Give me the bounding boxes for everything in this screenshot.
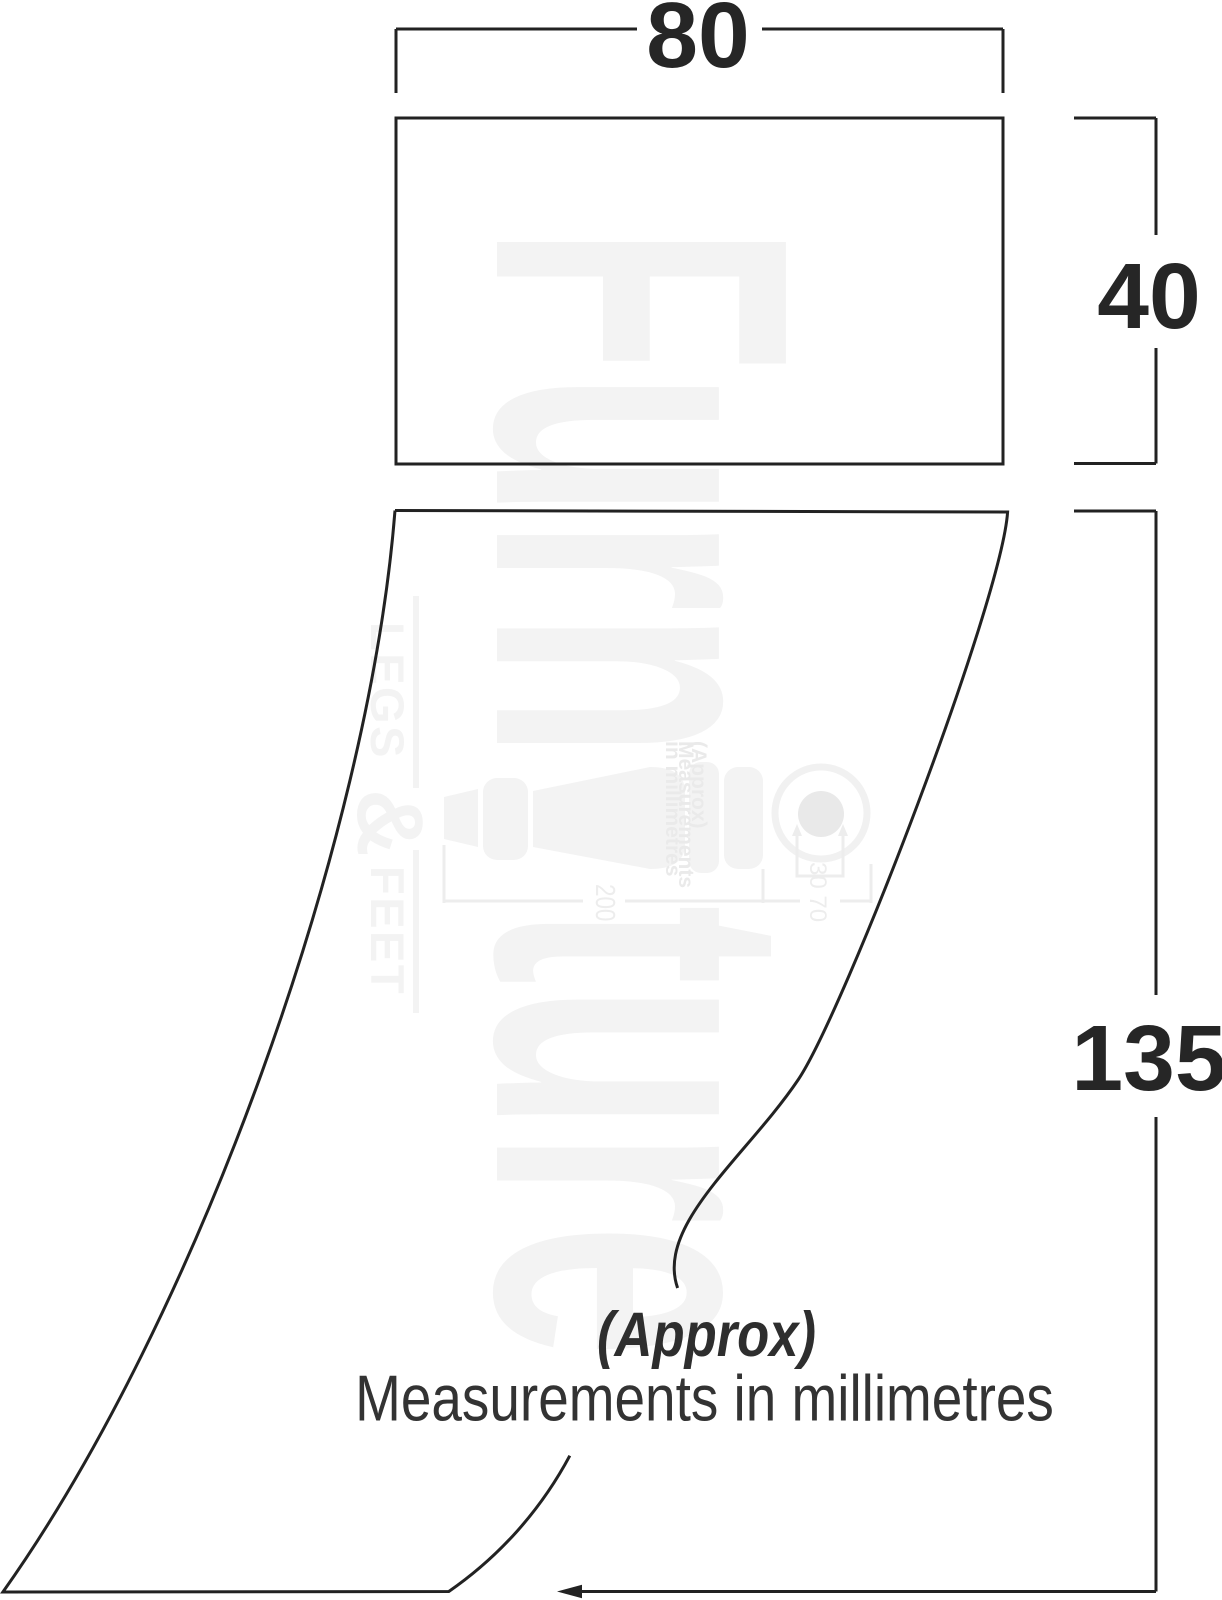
svg-text:80: 80 xyxy=(646,0,749,87)
svg-text:200: 200 xyxy=(589,884,620,921)
svg-text:&: & xyxy=(338,789,443,857)
svg-text:(Approx): (Approx) xyxy=(597,1300,816,1371)
svg-text:135: 135 xyxy=(1071,1006,1222,1110)
svg-text:ture: ture xyxy=(407,905,875,1357)
svg-text:Furn: Furn xyxy=(407,226,875,758)
svg-text:Measurements in millimetres: Measurements in millimetres xyxy=(355,1362,1054,1434)
svg-text:in millimetres: in millimetres xyxy=(661,741,684,876)
svg-text:40: 40 xyxy=(1097,244,1200,348)
svg-text:30 70: 30 70 xyxy=(804,862,831,922)
svg-text:FEET: FEET xyxy=(361,866,414,996)
